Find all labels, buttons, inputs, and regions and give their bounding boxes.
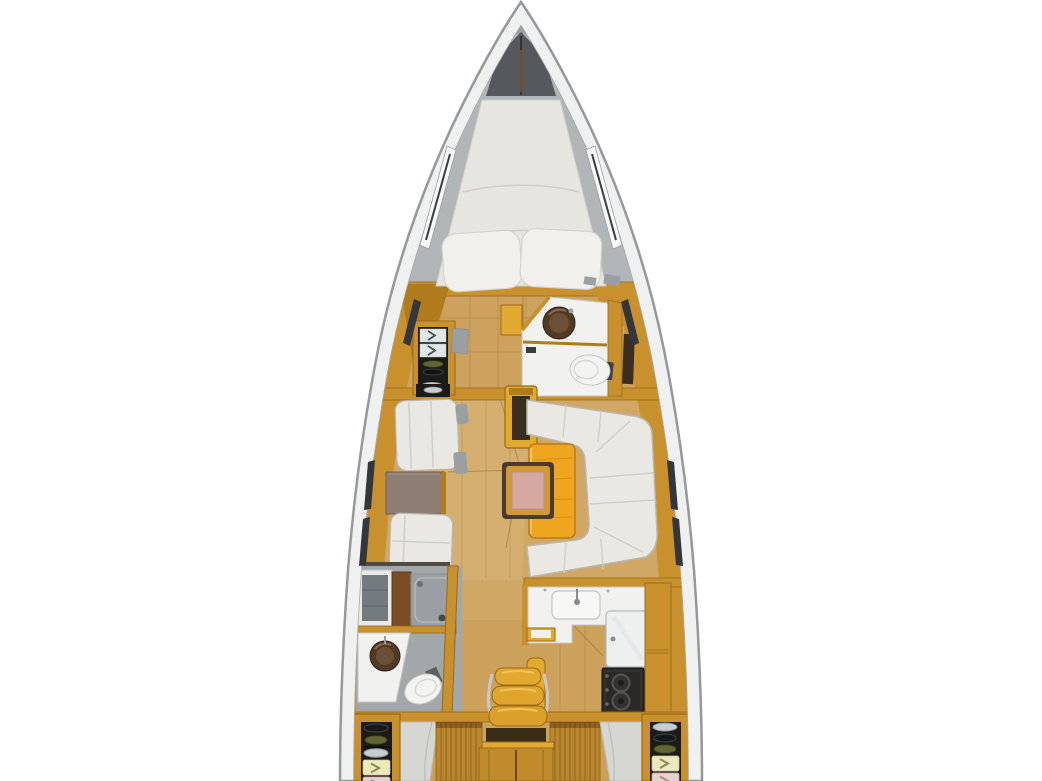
drain-icon [439,615,446,622]
aft-cabin-starboard [550,722,650,781]
aft-cabin-port [392,722,482,781]
deck-hatch [584,276,597,286]
nightstand [501,305,522,335]
companionway-steps [479,742,554,781]
hatch-fitting [451,329,468,354]
galley-cabinet [645,583,671,715]
mirror-panel [420,344,446,357]
faucet-icon [569,309,574,314]
wood-locker [392,572,411,626]
pillow-left [441,229,523,292]
folding-table-leaf [502,462,554,519]
mirror-panel [420,329,446,342]
yacht-floor-plan-image [0,0,1042,781]
handle-icon [611,637,616,642]
fridge [606,611,648,667]
head-sink [543,307,575,339]
stove [602,668,644,714]
nav-seat [486,668,548,746]
armrest-fitting [453,452,468,475]
armrest-fitting [455,403,469,424]
port-settee-forward [395,399,459,471]
showerhead-icon [417,581,423,587]
storage-locker-starboard [642,714,690,781]
salon-port-table [386,472,446,514]
yacht-floor-plan [0,0,1042,781]
aft-head-shower [356,562,462,714]
storage-locker-port [352,714,400,781]
